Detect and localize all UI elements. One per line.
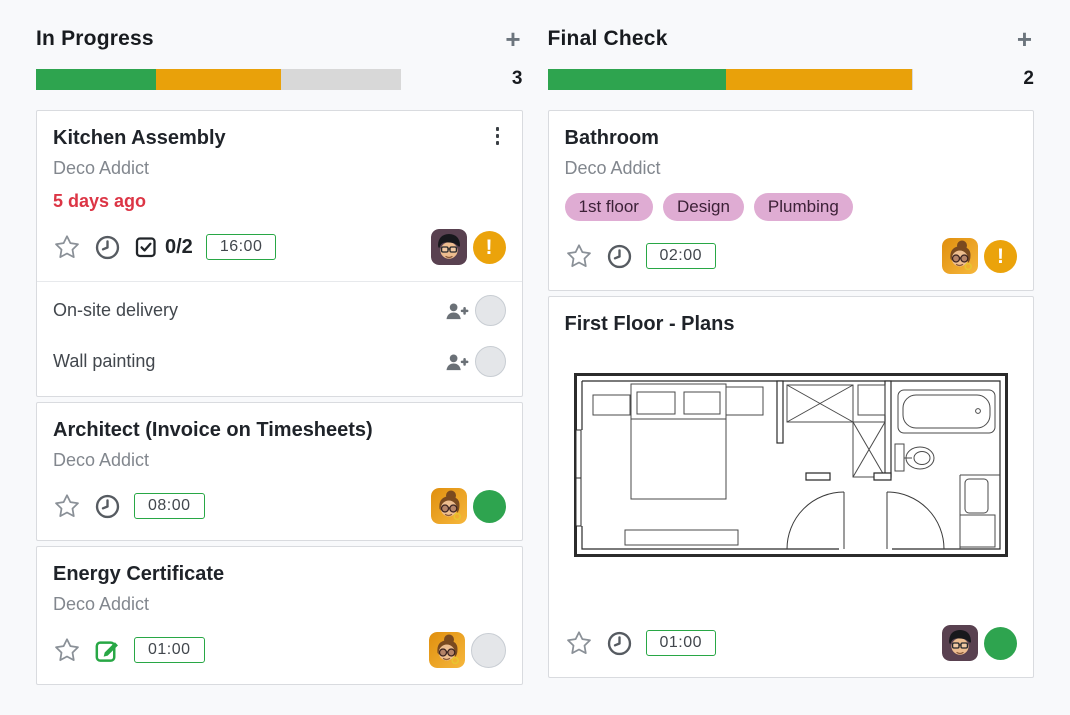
clock-icon[interactable] [606,243,633,270]
add-assignee-icon[interactable] [444,300,469,322]
activity-done-dot[interactable] [984,627,1017,660]
star-icon[interactable] [565,242,593,270]
progress-segment-warning[interactable] [726,69,912,90]
add-assignee-icon[interactable] [444,351,469,373]
subtask-title: Wall painting [53,351,155,372]
card-customer: Deco Addict [565,158,1018,179]
hours-badge[interactable]: 02:00 [646,243,717,269]
column-title[interactable]: In Progress [36,27,154,51]
card-architect[interactable]: Architect (Invoice on Timesheets) Deco A… [36,402,523,541]
avatar-woman-with-glasses[interactable] [429,632,465,668]
subtask-row[interactable]: Wall painting [53,336,506,387]
card-deadline: 5 days ago [53,191,506,212]
card-title: Kitchen Assembly [53,126,506,151]
card-bathroom[interactable]: Bathroom Deco Addict 1st floorDesignPlum… [548,110,1035,291]
avatar-woman-with-glasses[interactable] [942,238,978,274]
edit-timesheet-icon[interactable] [94,637,121,664]
column-count: 2 [1023,68,1034,90]
tag-1st-floor: 1st floor [565,193,653,221]
card-menu-icon[interactable] [490,127,506,147]
star-icon[interactable] [565,629,593,657]
subtask-row[interactable]: On-site delivery [53,285,506,336]
star-icon[interactable] [53,492,81,520]
clock-icon[interactable] [606,630,633,657]
card-title: Architect (Invoice on Timesheets) [53,418,506,443]
activity-warning-dot[interactable]: ! [473,231,506,264]
add-card-button[interactable]: + [503,29,522,49]
checklist-icon [134,235,158,259]
subtask-activity-dot[interactable] [475,346,506,377]
avatar-man-with-glasses[interactable] [942,625,978,661]
checklist-indicator[interactable]: 0/2 [134,235,193,259]
column-count: 3 [512,68,523,90]
floor-plan-image [574,373,1008,557]
card-title: Bathroom [565,126,1018,151]
progress-segment-warning[interactable] [156,69,280,90]
progress-segment-success[interactable] [36,69,156,90]
avatar-woman-with-glasses[interactable] [431,488,467,524]
progress-segment-success[interactable] [548,69,727,90]
card-energy-certificate[interactable]: Energy Certificate Deco Addict 01:00 [36,546,523,685]
card-title: Energy Certificate [53,562,506,587]
card-customer: Deco Addict [53,594,506,615]
subtask-list: On-site delivery Wall painting [37,281,522,396]
kanban-board: In Progress + 3 Kitchen Assembly Deco Ad… [0,0,1070,690]
hours-badge[interactable]: 01:00 [134,637,205,663]
card-customer: Deco Addict [53,158,506,179]
column-in-progress: In Progress + 3 Kitchen Assembly Deco Ad… [36,20,523,690]
tag-plumbing: Plumbing [754,193,853,221]
column-title[interactable]: Final Check [548,27,668,51]
avatar-man-with-glasses[interactable] [431,229,467,265]
clock-icon[interactable] [94,234,121,261]
clock-icon[interactable] [94,493,121,520]
activity-none-dot[interactable] [471,633,506,668]
column-progress-bar[interactable] [548,69,913,90]
tag-row: 1st floorDesignPlumbing [565,193,1018,221]
activity-done-dot[interactable] [473,490,506,523]
star-icon[interactable] [53,636,81,664]
card-customer: Deco Addict [53,450,506,471]
card-title: First Floor - Plans [565,312,1018,337]
column-progress-bar[interactable] [36,69,401,90]
add-card-button[interactable]: + [1015,29,1034,49]
card-kitchen-assembly[interactable]: Kitchen Assembly Deco Addict 5 days ago … [36,110,523,397]
column-final-check: Final Check + 2 Bathroom Deco Addict 1st… [548,20,1035,690]
tag-design: Design [663,193,744,221]
subtask-activity-dot[interactable] [475,295,506,326]
hours-badge[interactable]: 08:00 [134,493,205,519]
subtask-title: On-site delivery [53,300,178,321]
activity-warning-dot[interactable]: ! [984,240,1017,273]
star-icon[interactable] [53,233,81,261]
checklist-count: 0/2 [165,236,193,259]
hours-badge[interactable]: 16:00 [206,234,277,260]
hours-badge[interactable]: 01:00 [646,630,717,656]
card-first-floor-plans[interactable]: First Floor - Plans [548,296,1035,678]
